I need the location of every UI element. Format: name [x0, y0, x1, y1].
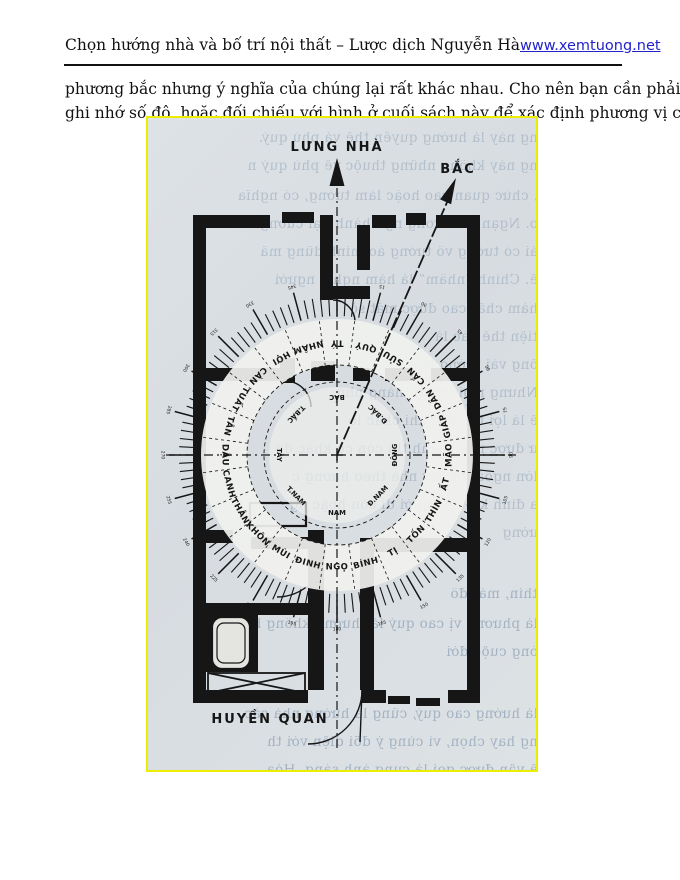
svg-text:15: 15	[378, 283, 385, 290]
header-rule	[64, 64, 622, 66]
document-title: Chọn hướng nhà và bố trí nội thất – Lược…	[65, 36, 520, 54]
north-label: BẮC	[440, 160, 476, 177]
back-of-house-arrowhead	[330, 158, 345, 186]
svg-text:75: 75	[502, 406, 509, 413]
paragraph-line-1: phương bắc nhưng ý nghĩa của chúng lại r…	[65, 77, 625, 101]
svg-text:255: 255	[164, 495, 172, 505]
svg-text:165: 165	[377, 620, 387, 628]
page-header: Chọn hướng nhà và bố trí nội thất – Lược…	[65, 36, 622, 54]
north-arrowhead	[440, 178, 456, 204]
svg-text:225: 225	[208, 573, 218, 583]
svg-text:195: 195	[287, 620, 297, 628]
svg-text:300: 300	[181, 363, 191, 374]
svg-text:285: 285	[164, 405, 172, 415]
svg-text:150: 150	[419, 601, 430, 611]
svg-text:105: 105	[502, 495, 510, 505]
entrance-label: HUYỀN QUAN	[211, 709, 328, 727]
website-link[interactable]: www.xemtuong.net	[520, 38, 661, 54]
back-of-house-label: LƯNG NHÀ	[290, 139, 383, 155]
svg-text:240: 240	[181, 537, 191, 548]
svg-text:345: 345	[287, 282, 297, 290]
svg-text:330: 330	[244, 299, 255, 309]
svg-text:120: 120	[483, 537, 493, 548]
svg-text:45: 45	[456, 327, 464, 335]
svg-text:30: 30	[420, 300, 428, 308]
floor-plan-compass-diagram: TÝQUÝSỬUCẤNDẦNGIÁPMÃOẤTTHÌNTỐNTỊBÍNHNGỌĐ…	[148, 118, 536, 770]
svg-text:60: 60	[484, 364, 492, 372]
bathtub	[212, 617, 250, 669]
svg-text:315: 315	[208, 326, 218, 336]
svg-text:135: 135	[455, 573, 465, 583]
svg-text:270: 270	[160, 451, 166, 460]
scanned-figure: ng này là hướng quyền thế và phú quý.ng …	[148, 118, 536, 770]
